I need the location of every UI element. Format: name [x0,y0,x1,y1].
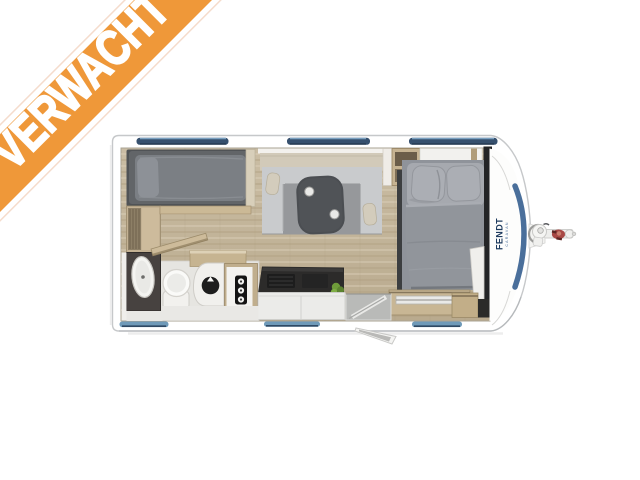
svg-text:FENDT: FENDT [495,218,505,250]
svg-text:CARAVAN: CARAVAN [505,221,509,246]
